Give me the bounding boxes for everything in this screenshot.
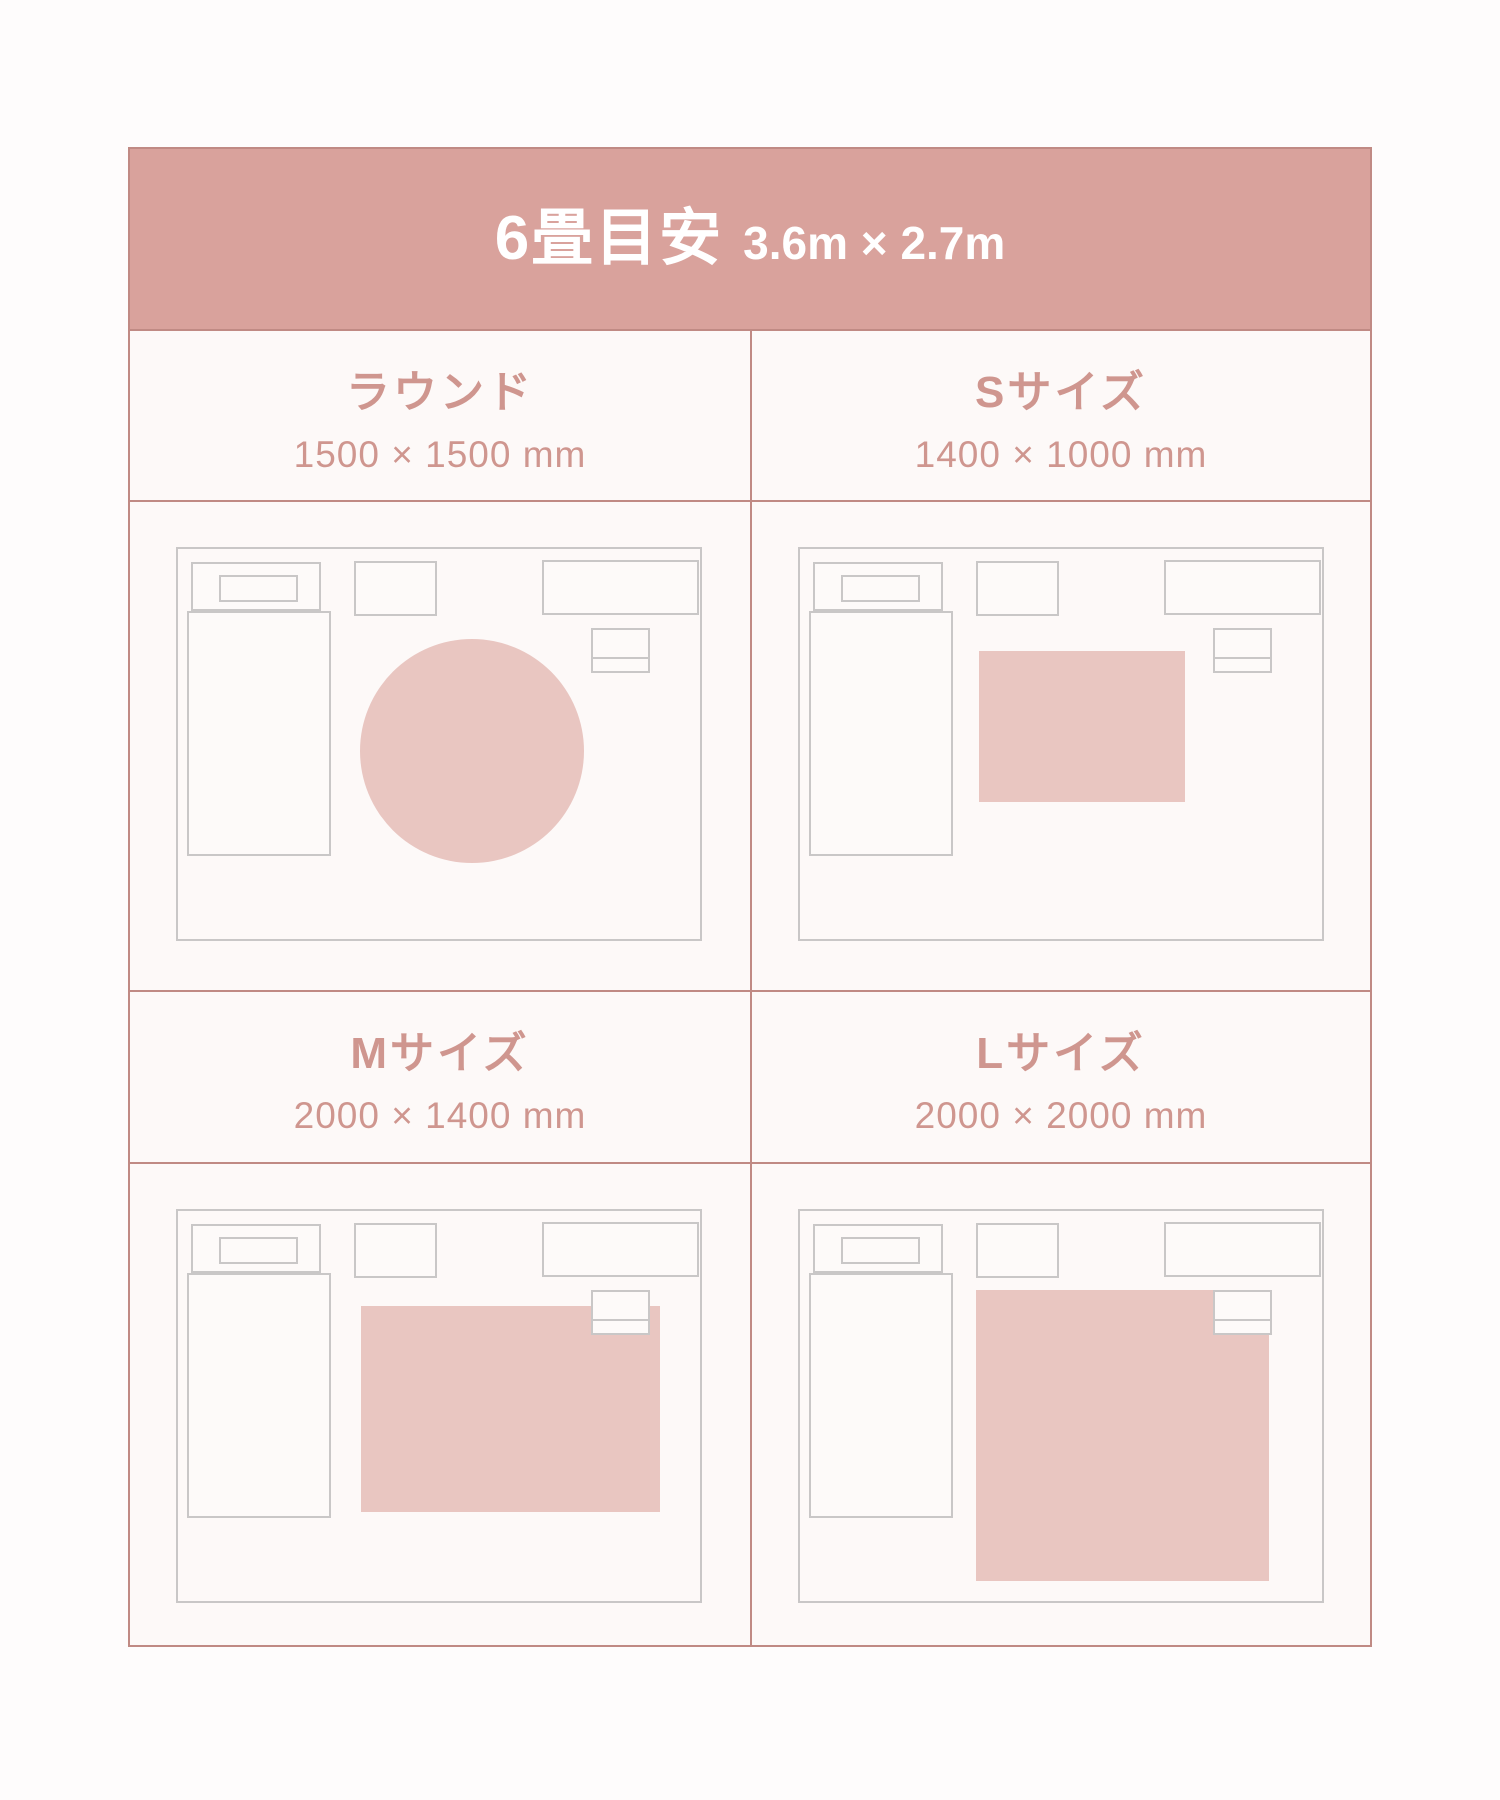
- desk: [542, 560, 699, 615]
- chair: [1213, 1290, 1272, 1335]
- bed: [809, 1273, 953, 1518]
- rug-name: ラウンド: [346, 356, 534, 420]
- bed: [809, 611, 953, 856]
- rug-name: Lサイズ: [976, 1017, 1146, 1081]
- bed-pillow: [219, 575, 298, 602]
- bed: [187, 611, 331, 856]
- room-dimensions: 3.6m × 2.7m: [743, 216, 1005, 270]
- diagram-cell-round: [130, 502, 750, 990]
- bed-pillow: [841, 575, 920, 602]
- label-row-2: Mサイズ 2000 × 1400 mm Lサイズ 2000 × 2000 mm: [130, 990, 1370, 1162]
- m-rug-shape: [361, 1306, 660, 1512]
- side-table: [354, 1223, 437, 1278]
- room-plan-m-size: [176, 1209, 702, 1603]
- rug-dimensions: 1400 × 1000 mm: [915, 434, 1208, 476]
- rug-dimensions: 2000 × 2000 mm: [915, 1095, 1208, 1137]
- tatami-title: 6畳目安: [495, 149, 723, 329]
- label-cell-l-size: Lサイズ 2000 × 2000 mm: [750, 992, 1370, 1162]
- s-rug-shape: [979, 651, 1185, 802]
- diagram-cell-l-size: [750, 1164, 1370, 1647]
- bed-pillow: [219, 1237, 298, 1264]
- rug-name: Sサイズ: [975, 356, 1147, 420]
- side-table: [976, 561, 1059, 616]
- chair-seat: [1213, 657, 1272, 673]
- rug-size-guide: { "header": { "title": "6畳目安", "room_siz…: [0, 0, 1500, 1800]
- label-cell-m-size: Mサイズ 2000 × 1400 mm: [130, 992, 750, 1162]
- table-header: 6畳目安 3.6m × 2.7m: [130, 149, 1370, 329]
- chair: [591, 1290, 650, 1335]
- chair-seat: [591, 1319, 650, 1335]
- chair-seat: [591, 657, 650, 673]
- desk: [542, 1222, 699, 1277]
- label-cell-round: ラウンド 1500 × 1500 mm: [130, 331, 750, 500]
- room-plan-l-size: [798, 1209, 1324, 1603]
- label-row-1: ラウンド 1500 × 1500 mm Sサイズ 1400 × 1000 mm: [130, 329, 1370, 500]
- diagram-row-2: [130, 1162, 1370, 1647]
- room-plan-round: [176, 547, 702, 941]
- desk: [1164, 560, 1321, 615]
- side-table: [976, 1223, 1059, 1278]
- side-table: [354, 561, 437, 616]
- chair: [1213, 628, 1272, 673]
- bed-pillow: [841, 1237, 920, 1264]
- round-rug-shape: [360, 639, 584, 863]
- desk: [1164, 1222, 1321, 1277]
- rug-dimensions: 2000 × 1400 mm: [294, 1095, 587, 1137]
- chair-seat: [1213, 1319, 1272, 1335]
- rug-dimensions: 1500 × 1500 mm: [294, 434, 587, 476]
- room-plan-s-size: [798, 547, 1324, 941]
- diagram-row-1: [130, 500, 1370, 990]
- diagram-cell-s-size: [750, 502, 1370, 990]
- rug-name: Mサイズ: [350, 1017, 529, 1081]
- bed: [187, 1273, 331, 1518]
- size-guide-table: 6畳目安 3.6m × 2.7m ラウンド 1500 × 1500 mm Sサイ…: [128, 147, 1372, 1647]
- label-cell-s-size: Sサイズ 1400 × 1000 mm: [750, 331, 1370, 500]
- chair: [591, 628, 650, 673]
- diagram-cell-m-size: [130, 1164, 750, 1647]
